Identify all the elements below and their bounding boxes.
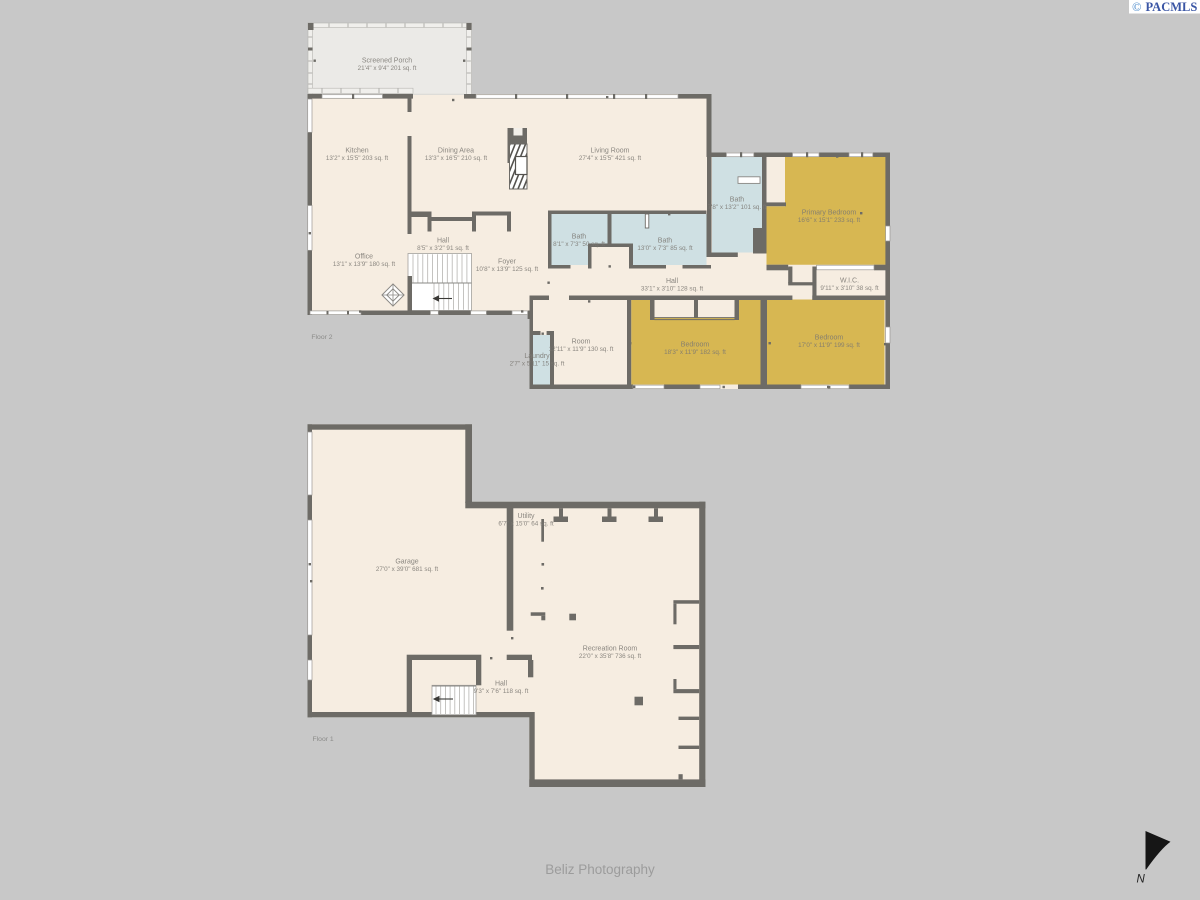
- svg-text:© PACMLS: © PACMLS: [1132, 0, 1197, 14]
- svg-text:6'7" x 15'0" 64 sq. ft: 6'7" x 15'0" 64 sq. ft: [498, 520, 553, 527]
- svg-text:13'1" x 13'9" 180 sq. ft: 13'1" x 13'9" 180 sq. ft: [333, 261, 395, 268]
- svg-text:8'5" x 3'2" 91 sq. ft: 8'5" x 3'2" 91 sq. ft: [417, 245, 469, 252]
- svg-text:Bedroom: Bedroom: [681, 342, 710, 349]
- svg-text:Bath: Bath: [730, 197, 745, 204]
- svg-text:16'6" x 15'1" 233 sq. ft: 16'6" x 15'1" 233 sq. ft: [798, 217, 860, 224]
- svg-text:Beliz Photography: Beliz Photography: [545, 862, 655, 877]
- svg-text:2'7" x 5'11" 15 sq. ft: 2'7" x 5'11" 15 sq. ft: [510, 360, 565, 367]
- svg-text:13'3" x 16'5" 210 sq. ft: 13'3" x 16'5" 210 sq. ft: [425, 155, 487, 162]
- svg-text:Recreation Room: Recreation Room: [583, 646, 638, 653]
- svg-text:13'0" x 7'3" 85 sq. ft: 13'0" x 7'3" 85 sq. ft: [637, 245, 692, 252]
- svg-text:18'3" x 11'9" 182 sq. ft: 18'3" x 11'9" 182 sq. ft: [664, 349, 726, 356]
- svg-text:7'8" x 13'2" 101 sq. ft: 7'8" x 13'2" 101 sq. ft: [708, 204, 767, 211]
- svg-text:13'2" x 15'5" 203 sq. ft: 13'2" x 15'5" 203 sq. ft: [326, 155, 388, 162]
- svg-text:9'3" x 7'6" 118 sq. ft: 9'3" x 7'6" 118 sq. ft: [474, 688, 529, 695]
- svg-text:Foyer: Foyer: [498, 259, 517, 266]
- svg-text:N: N: [1137, 874, 1146, 886]
- svg-text:Garage: Garage: [395, 559, 418, 566]
- svg-text:17'0" x 11'9" 199 sq. ft: 17'0" x 11'9" 199 sq. ft: [798, 342, 860, 349]
- svg-text:33'1" x 3'10" 128 sq. ft: 33'1" x 3'10" 128 sq. ft: [641, 285, 703, 292]
- svg-text:8'1" x 7'3" 50 sq. ft: 8'1" x 7'3" 50 sq. ft: [553, 241, 605, 248]
- svg-text:Room: Room: [572, 339, 591, 346]
- svg-text:Bath: Bath: [658, 238, 673, 245]
- svg-text:W.I.C.: W.I.C.: [840, 278, 859, 285]
- svg-text:Hall: Hall: [437, 238, 450, 245]
- svg-text:27'4" x 15'5" 421 sq. ft: 27'4" x 15'5" 421 sq. ft: [579, 155, 641, 162]
- svg-text:Hall: Hall: [666, 278, 679, 285]
- svg-text:10'8" x 13'9" 125 sq. ft: 10'8" x 13'9" 125 sq. ft: [476, 266, 538, 273]
- svg-text:Kitchen: Kitchen: [345, 148, 368, 155]
- svg-text:Floor 1: Floor 1: [313, 736, 334, 743]
- svg-text:Bedroom: Bedroom: [815, 335, 844, 342]
- svg-text:9'11" x 3'10" 38 sq. ft: 9'11" x 3'10" 38 sq. ft: [820, 285, 878, 292]
- svg-text:Dining Area: Dining Area: [438, 148, 474, 155]
- svg-text:Living Room: Living Room: [591, 148, 630, 155]
- svg-text:12'11" x 11'9" 130 sq. ft: 12'11" x 11'9" 130 sq. ft: [549, 346, 614, 353]
- svg-text:Bath: Bath: [572, 234, 587, 241]
- svg-text:Screened Porch: Screened Porch: [362, 58, 412, 65]
- svg-text:Floor 2: Floor 2: [311, 334, 332, 341]
- svg-text:Hall: Hall: [495, 681, 508, 688]
- svg-text:Office: Office: [355, 254, 373, 261]
- svg-text:22'0" x 35'8" 736 sq. ft: 22'0" x 35'8" 736 sq. ft: [579, 653, 641, 660]
- svg-text:21'4" x 9'4" 201 sq. ft: 21'4" x 9'4" 201 sq. ft: [358, 65, 417, 72]
- svg-text:Primary Bedroom: Primary Bedroom: [802, 210, 857, 217]
- svg-text:27'0" x 39'0" 681 sq. ft: 27'0" x 39'0" 681 sq. ft: [376, 566, 438, 573]
- svg-text:Utility: Utility: [517, 513, 535, 520]
- svg-text:Laundry: Laundry: [524, 353, 550, 360]
